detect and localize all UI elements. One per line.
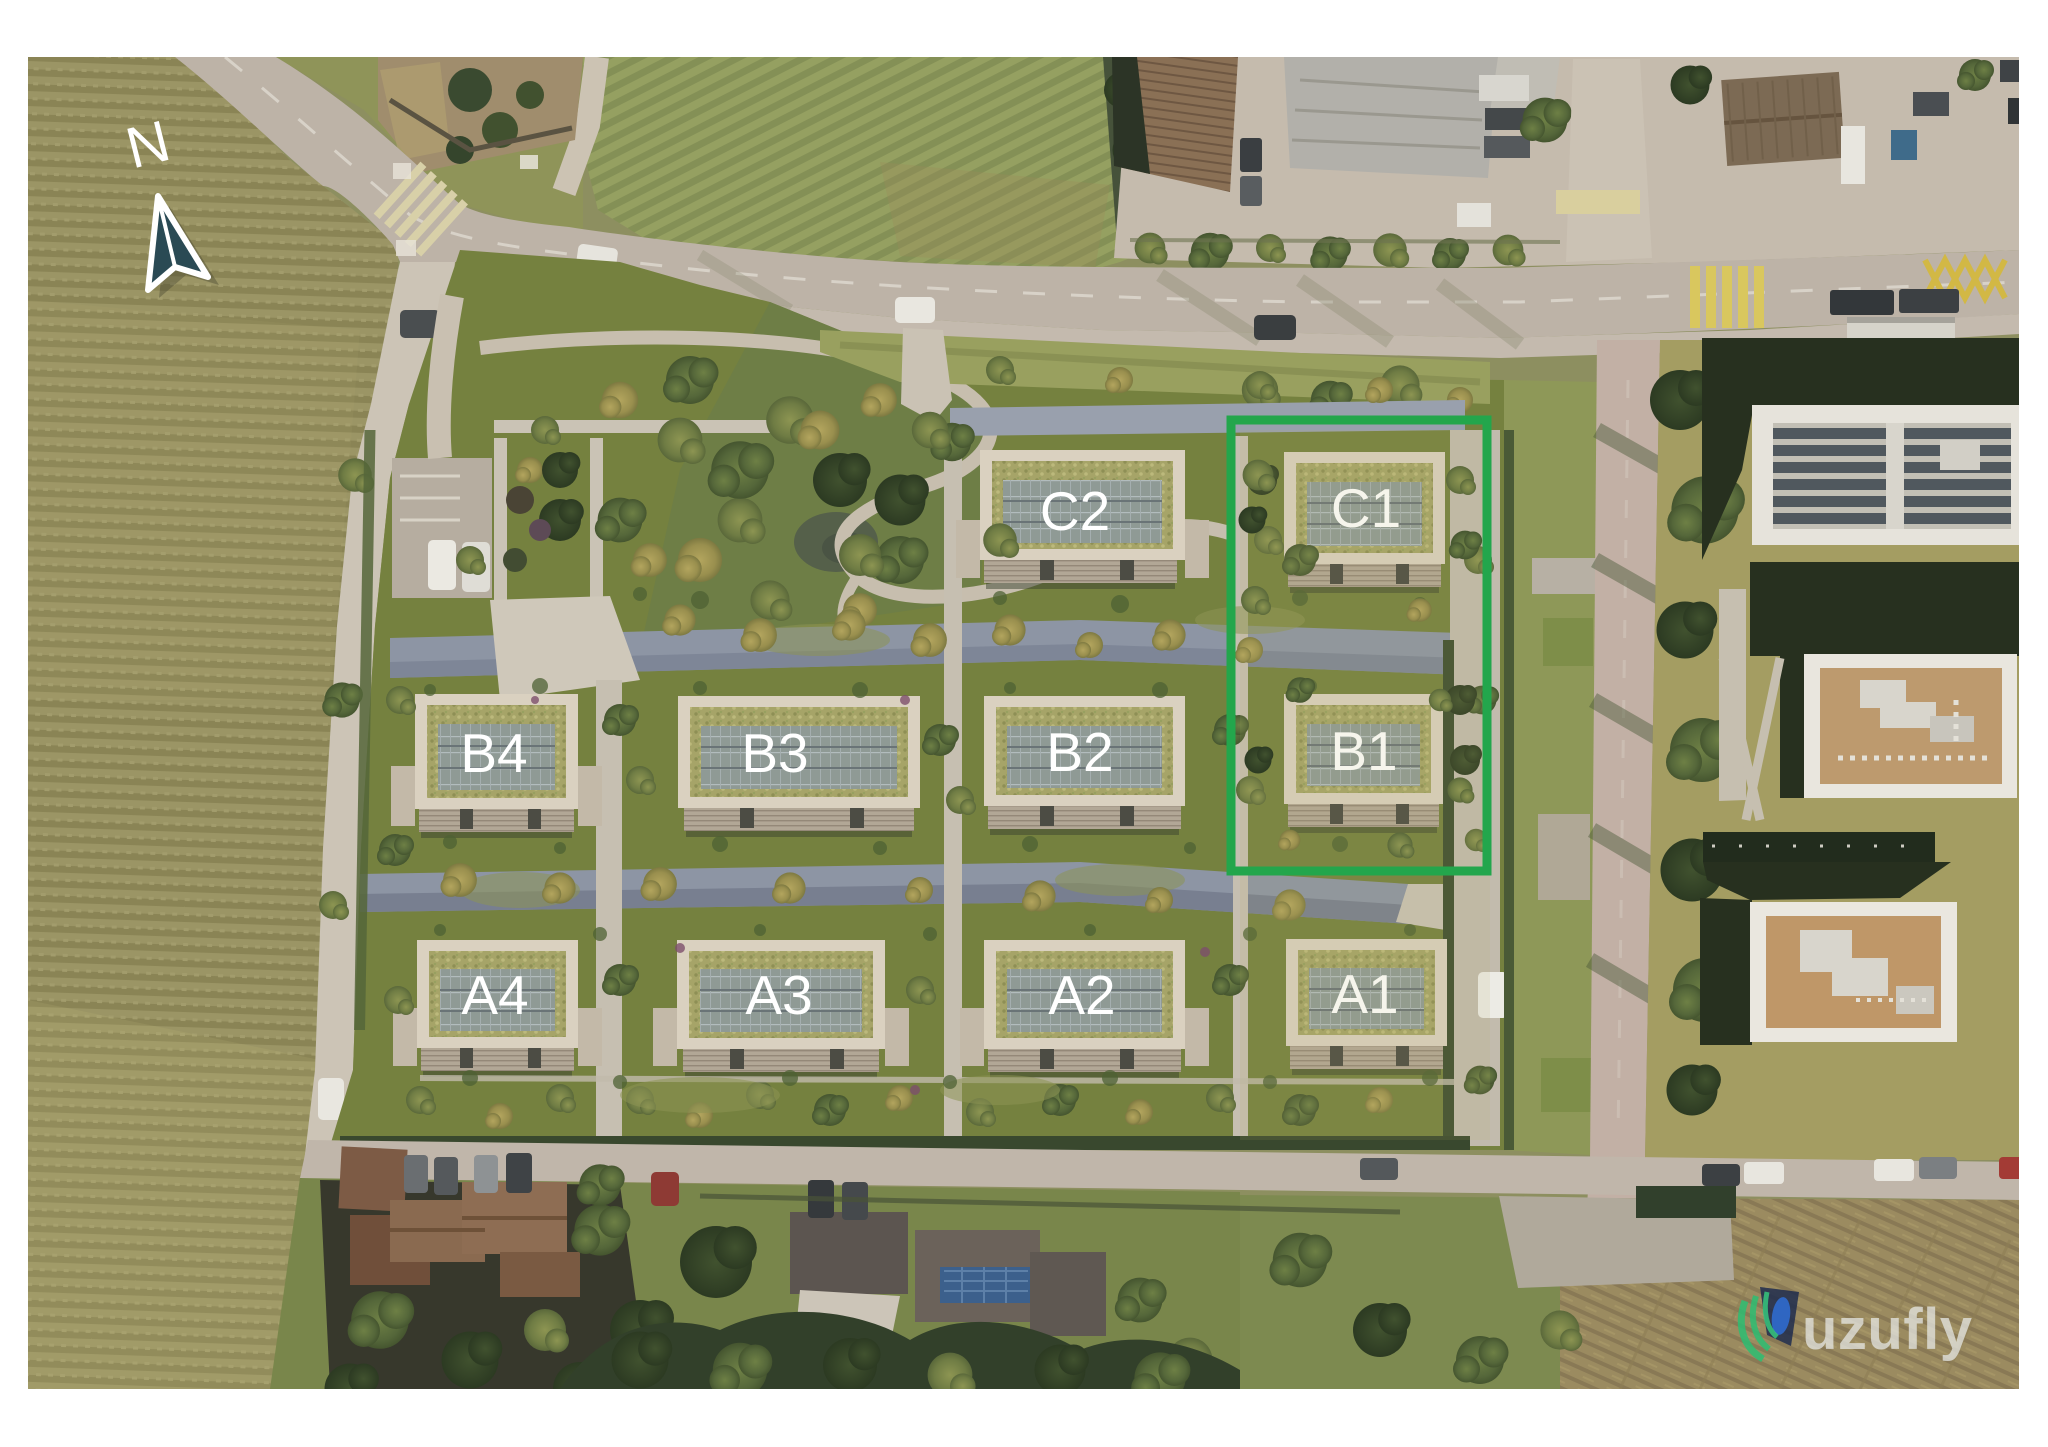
svg-text:A3: A3 xyxy=(745,964,812,1026)
svg-text:A2: A2 xyxy=(1048,964,1115,1026)
svg-text:B2: B2 xyxy=(1046,721,1113,783)
svg-text:B4: B4 xyxy=(460,722,527,784)
svg-text:uzufly: uzufly xyxy=(1802,1297,1973,1362)
svg-text:C2: C2 xyxy=(1040,480,1110,542)
svg-text:A4: A4 xyxy=(461,964,528,1026)
svg-text:B3: B3 xyxy=(741,722,808,784)
